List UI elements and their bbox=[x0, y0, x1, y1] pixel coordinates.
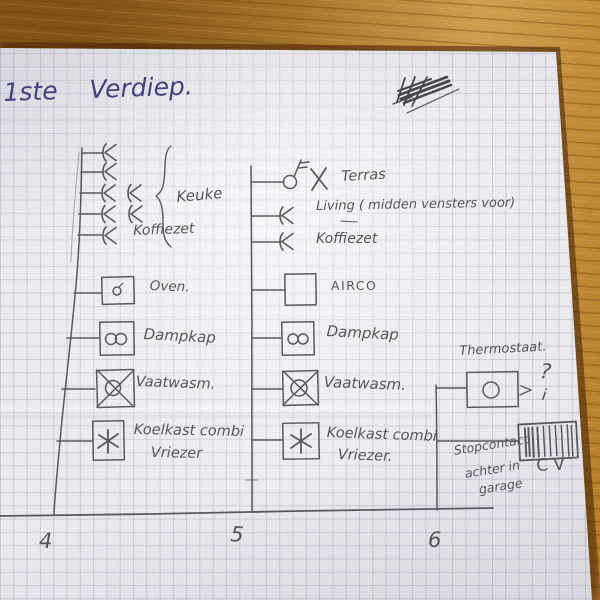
supply-bus-line bbox=[0, 508, 493, 516]
label-vaatwasmachine-c5: Vaatwasm. bbox=[323, 375, 406, 393]
photo-floor-plan-sketch: 1ste Verdiep. Keuke Koffiezet Oven. Damp… bbox=[0, 0, 600, 600]
label-vaatwasmachine-c4: Vaatwasm. bbox=[135, 375, 215, 392]
light-point-symbol bbox=[284, 160, 328, 190]
label-koelkast-c5-line2: Vriezer. bbox=[337, 448, 392, 464]
label-koelkast-c5-line1: Koelkast combi bbox=[326, 426, 437, 444]
airco-symbol bbox=[285, 274, 317, 306]
label-koelkast-c4-line2: Vriezer bbox=[151, 446, 203, 461]
label-dampkap-c5: Dampkap bbox=[326, 324, 399, 343]
page-title: 1ste Verdiep. bbox=[3, 73, 193, 105]
circuit-number-6: 6 bbox=[428, 530, 441, 551]
graph-paper: 1ste Verdiep. Keuke Koffiezet Oven. Damp… bbox=[0, 0, 600, 600]
thermostat-symbol bbox=[467, 372, 519, 408]
label-keuken: Keuke bbox=[176, 186, 223, 205]
label-terras: Terras bbox=[341, 168, 386, 185]
circuit-5-riser bbox=[251, 166, 252, 512]
label-living: Living ( midden vensters voor) bbox=[316, 197, 515, 213]
label-oven: Oven. bbox=[150, 280, 190, 295]
circuit-number-5: 5 bbox=[230, 524, 245, 546]
fridge-freezer-symbol bbox=[283, 423, 320, 460]
label-dampkap-c4: Dampkap bbox=[143, 327, 216, 346]
socket-icon bbox=[280, 207, 293, 250]
pencil-scribble bbox=[393, 77, 459, 113]
dishwasher-symbol bbox=[283, 371, 319, 406]
label-airco: AIRCO bbox=[331, 280, 377, 293]
label-cv: CV bbox=[536, 456, 570, 475]
dishwasher-symbol bbox=[97, 370, 135, 408]
question-mark: ? bbox=[539, 361, 552, 383]
label-koelkast-c4-line1: Koelkast combi bbox=[134, 423, 244, 439]
circuit-number-4: 4 bbox=[39, 531, 52, 552]
arrow-mark bbox=[520, 386, 531, 395]
extractor-hood-symbol bbox=[282, 322, 315, 356]
extractor-hood-symbol bbox=[100, 322, 135, 356]
living-underline bbox=[341, 221, 357, 222]
circuit-4-riser bbox=[54, 148, 82, 514]
oven-symbol bbox=[102, 277, 135, 305]
label-koffiezet-c5: Koffiezet bbox=[316, 232, 377, 246]
fridge-freezer-symbol bbox=[93, 421, 125, 461]
circuit-6-riser bbox=[436, 385, 437, 510]
label-koffiezet-c4: Koffiezet bbox=[133, 222, 195, 238]
